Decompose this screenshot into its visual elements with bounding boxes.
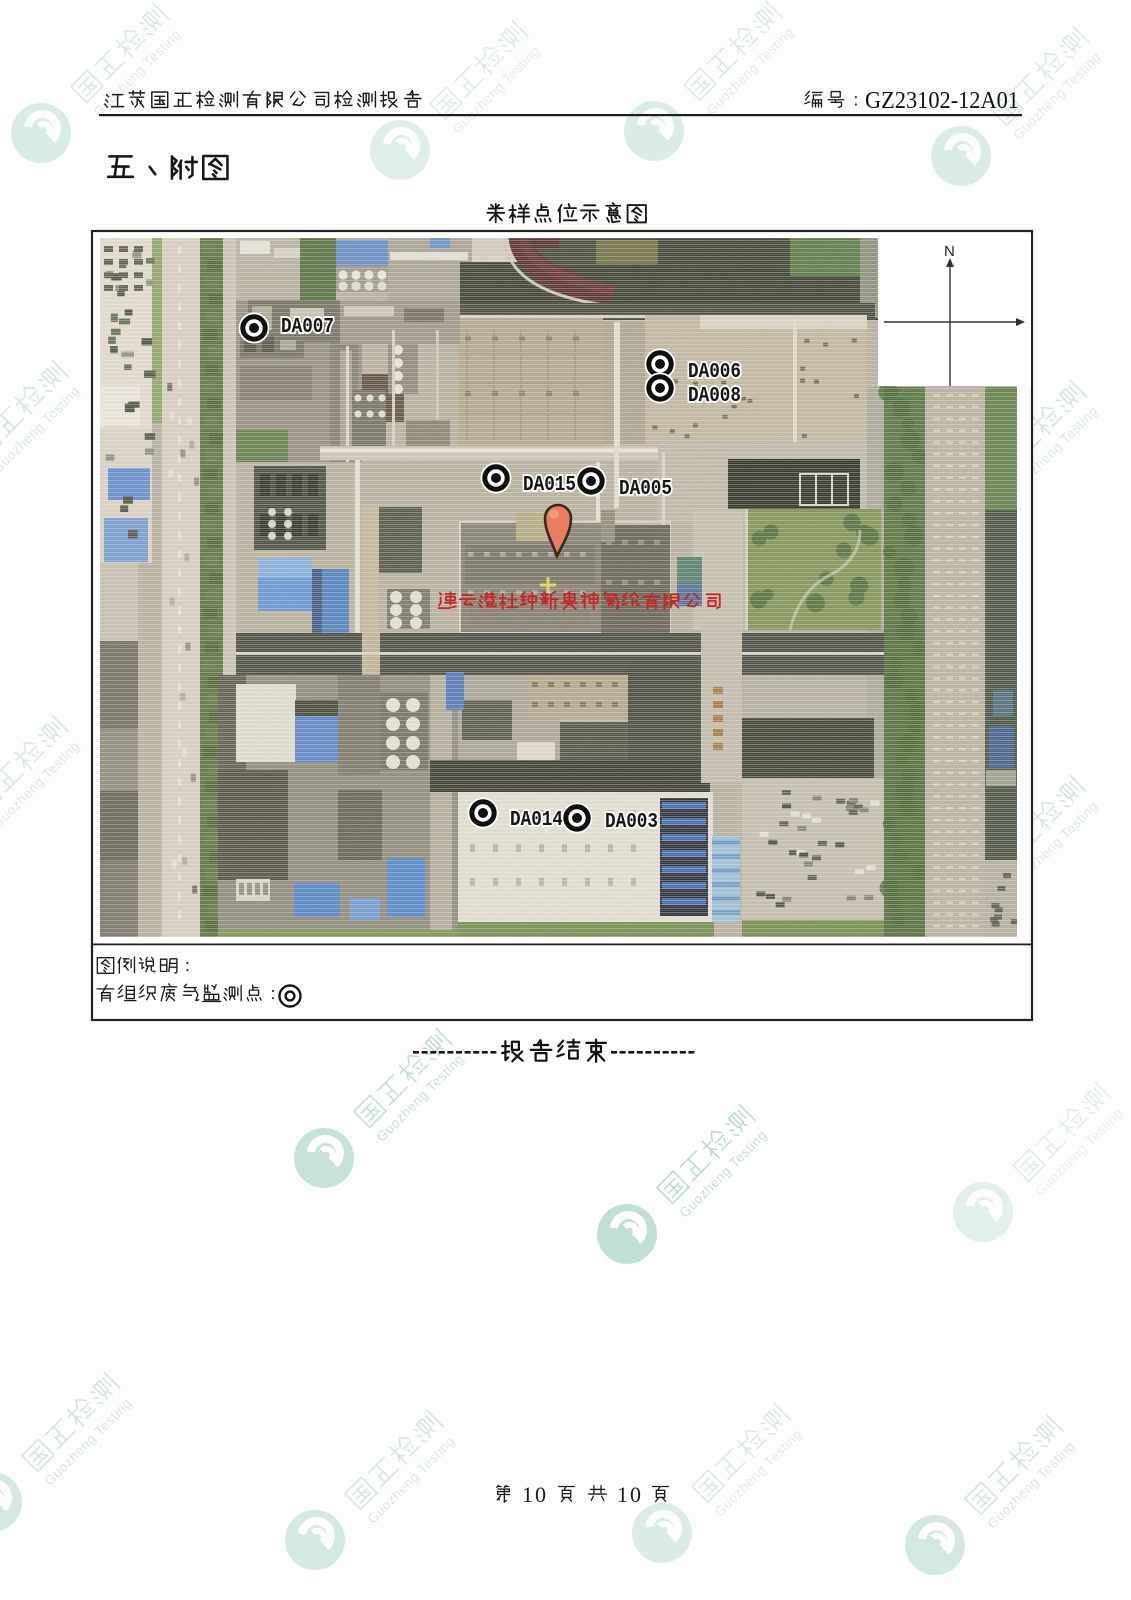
svg-text:DA015: DA015 — [523, 474, 576, 497]
svg-text:DA005: DA005 — [619, 478, 672, 501]
svg-text:N: N — [944, 243, 955, 260]
svg-text:DA006: DA006 — [688, 361, 741, 384]
svg-text:DA008: DA008 — [688, 385, 741, 408]
svg-text:DA007: DA007 — [281, 316, 334, 339]
svg-text:GZ23102-12A01: GZ23102-12A01 — [865, 88, 1019, 114]
svg-text:DA003: DA003 — [605, 811, 658, 834]
svg-text:DA014: DA014 — [510, 809, 563, 832]
